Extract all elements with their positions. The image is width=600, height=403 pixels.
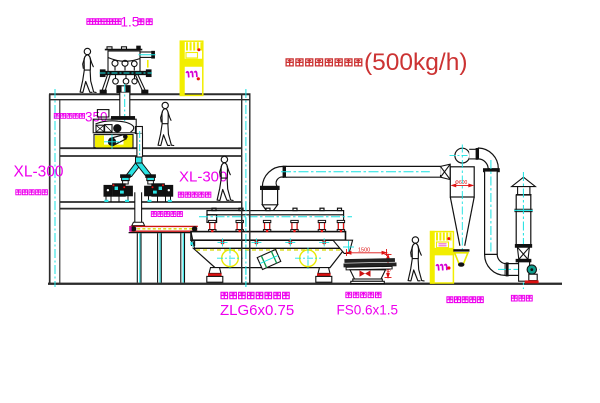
svg-text:Φ600: Φ600 xyxy=(455,180,468,186)
svg-text:1.5: 1.5 xyxy=(121,15,140,30)
svg-text:(500kg/h): (500kg/h) xyxy=(364,49,468,76)
svg-text:1500: 1500 xyxy=(358,248,370,254)
svg-text:FS0.6x1.5: FS0.6x1.5 xyxy=(337,303,399,318)
svg-text:ZLG6x0.75: ZLG6x0.75 xyxy=(220,302,294,319)
svg-text:XL-300: XL-300 xyxy=(14,164,64,181)
